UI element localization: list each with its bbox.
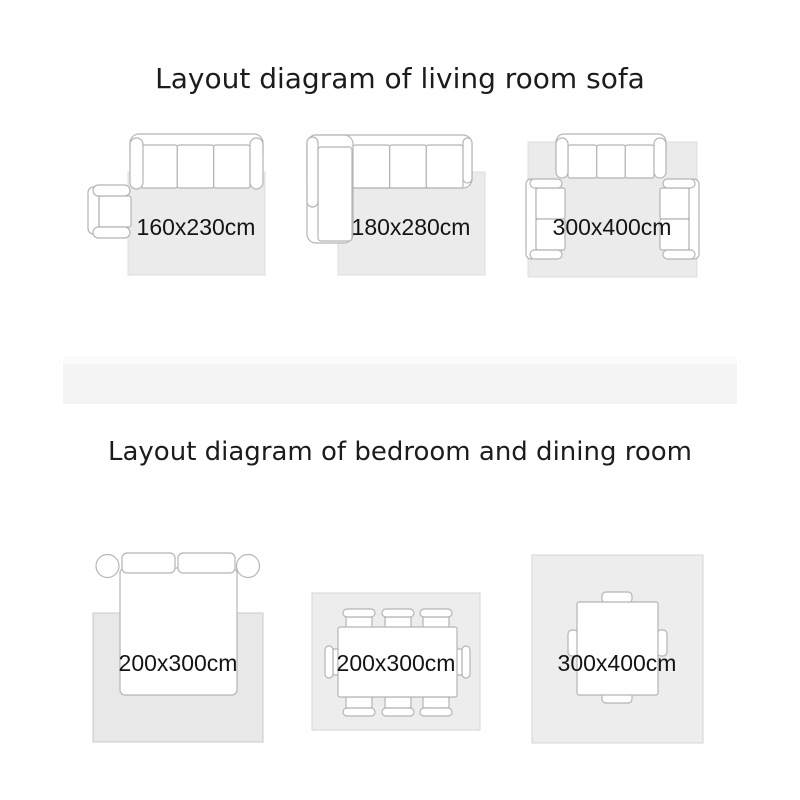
diagram-living-300x400 xyxy=(515,125,715,285)
left-nightstand xyxy=(96,555,119,578)
section-divider-band xyxy=(63,364,737,404)
table xyxy=(577,602,658,695)
bottom-chairs xyxy=(343,697,452,716)
three-seat-sofa xyxy=(130,134,263,189)
rug-size-label: 200x300cm xyxy=(316,650,476,677)
rug-size-label: 300x400cm xyxy=(532,214,692,241)
diagram-bedroom-200x300 xyxy=(80,540,280,750)
diagram-living-180x280 xyxy=(295,125,495,285)
rug-size-label: 200x300cm xyxy=(98,650,258,677)
three-seat-sofa xyxy=(556,134,666,178)
section-divider-soft-edge xyxy=(63,356,737,364)
rug-size-label: 180x280cm xyxy=(331,214,491,241)
right-nightstand xyxy=(237,555,260,578)
rug-size-label: 300x400cm xyxy=(537,650,697,677)
living-room-section-title: Layout diagram of living room sofa xyxy=(0,63,800,95)
rug-size-label: 160x230cm xyxy=(116,214,276,241)
rug-size-guide-image: Layout diagram of living room sofa 160x2… xyxy=(0,0,800,800)
bedroom-dining-section-title: Layout diagram of bedroom and dining roo… xyxy=(0,437,800,467)
diagram-living-160x230 xyxy=(80,125,280,285)
top-chairs xyxy=(343,609,452,628)
diagram-dining-300x400 xyxy=(515,540,715,750)
